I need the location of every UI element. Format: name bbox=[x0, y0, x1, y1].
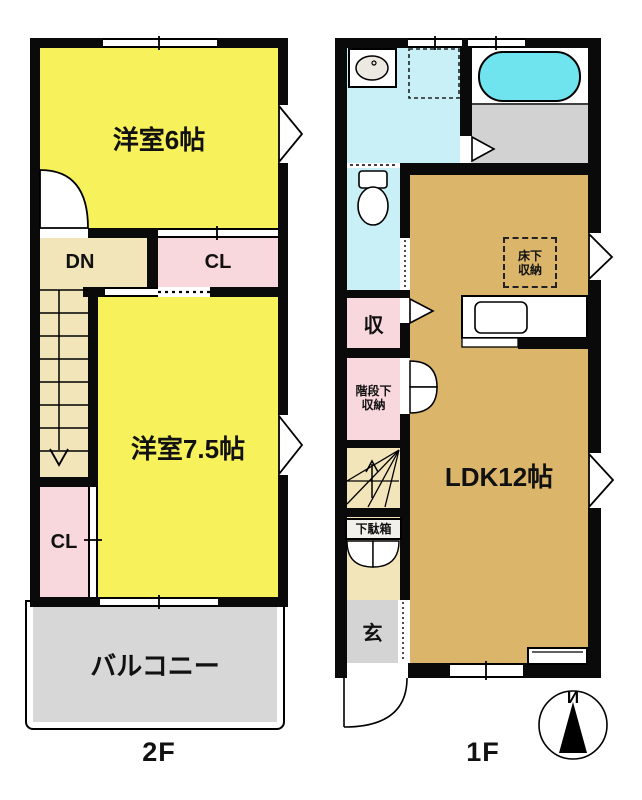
label-dn: DN bbox=[40, 238, 120, 287]
label-bedroom6: 洋室6帖 bbox=[40, 48, 278, 228]
label-underfloor-storage-line2: 収納 bbox=[518, 263, 542, 277]
door-triangle-storage bbox=[410, 299, 433, 323]
stairs-2f-treads bbox=[40, 290, 88, 451]
label-underfloor-storage-line1: 床下 bbox=[518, 249, 542, 263]
label-under-stair-storage: 階段下 収納 bbox=[347, 378, 400, 418]
compass-north-label: И bbox=[567, 688, 579, 707]
label-floor-2f: 2F bbox=[30, 736, 288, 768]
kitchen-counter-front bbox=[462, 338, 518, 347]
window-bench-icon bbox=[528, 648, 587, 664]
label-storage: 収 bbox=[347, 298, 400, 348]
bathtub-icon bbox=[479, 52, 580, 101]
label-closet-top: CL bbox=[158, 238, 278, 287]
washbasin-bowl-icon bbox=[356, 56, 388, 80]
label-genkan: 玄 bbox=[347, 600, 398, 663]
washer-pan-dashed-icon bbox=[409, 49, 459, 98]
double-door-understair-bottom bbox=[410, 387, 437, 413]
opening-triangle-2f-bedroom75 bbox=[279, 416, 302, 474]
double-door-shoe-left bbox=[347, 541, 373, 567]
toilet-tank-icon bbox=[359, 171, 387, 188]
entrance-door-swing bbox=[344, 678, 407, 727]
toilet-bowl-icon bbox=[358, 187, 388, 225]
opening-triangle-1f-lower bbox=[589, 454, 613, 507]
label-underfloor-storage: 床下 収納 bbox=[503, 240, 557, 286]
label-shoe-cabinet: 下駄箱 bbox=[345, 518, 402, 540]
double-door-shoe-right bbox=[373, 541, 399, 567]
label-floor-1f: 1F bbox=[350, 736, 616, 768]
stairs-1f-fan bbox=[347, 450, 399, 507]
label-under-stair-storage-line2: 収納 bbox=[361, 398, 385, 412]
label-bedroom75: 洋室7.5帖 bbox=[98, 297, 278, 597]
window-ticks-1f bbox=[435, 36, 496, 680]
label-closet-bottom: CL bbox=[40, 487, 88, 597]
kitchen-halfwall bbox=[518, 338, 588, 349]
floor-plan: И 洋室6帖 DN CL 洋室7.5帖 CL バルコニー 2F LDK12帖 収… bbox=[0, 0, 642, 800]
label-ldk: LDK12帖 bbox=[410, 455, 588, 495]
label-balcony: バルコニー bbox=[33, 607, 277, 722]
opening-triangle-2f-bedroom6 bbox=[279, 106, 302, 162]
door-triangle-bath bbox=[472, 137, 494, 161]
opening-triangle-1f-upper bbox=[589, 234, 612, 279]
label-under-stair-storage-line1: 階段下 bbox=[355, 384, 391, 398]
kitchen-sink-icon bbox=[475, 302, 527, 333]
double-door-understair-top bbox=[410, 361, 437, 387]
